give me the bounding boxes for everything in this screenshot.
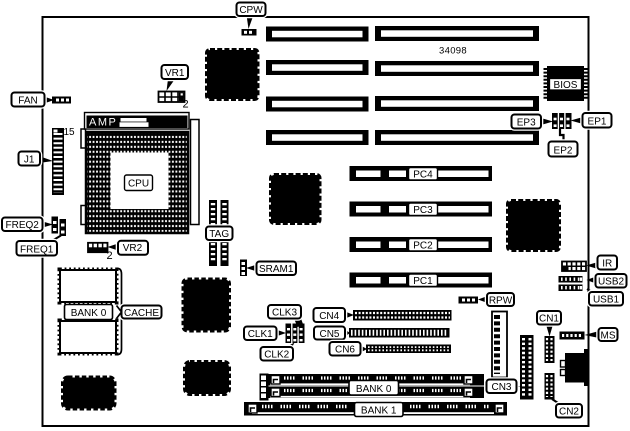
svg-text:AMP: AMP xyxy=(89,117,117,129)
svg-text:CN6: CN6 xyxy=(335,345,355,356)
svg-text:USB1: USB1 xyxy=(593,295,620,306)
svg-text:EP1: EP1 xyxy=(588,117,607,128)
svg-text:IR: IR xyxy=(602,259,612,270)
svg-text:RPW: RPW xyxy=(489,296,513,307)
svg-text:CN2: CN2 xyxy=(559,407,579,418)
svg-text:2: 2 xyxy=(183,99,189,111)
svg-text:MS: MS xyxy=(601,331,616,342)
svg-text:EP3: EP3 xyxy=(517,118,536,129)
svg-text:USB2: USB2 xyxy=(598,277,625,288)
svg-text:2: 2 xyxy=(107,250,113,262)
svg-text:FAN: FAN xyxy=(18,96,37,107)
svg-text:EP2: EP2 xyxy=(554,146,573,157)
svg-text:PC4: PC4 xyxy=(413,170,433,181)
svg-text:CPW: CPW xyxy=(239,5,263,16)
svg-text:PC1: PC1 xyxy=(413,276,433,287)
svg-text:CN5: CN5 xyxy=(319,329,339,340)
svg-text:CLK2: CLK2 xyxy=(264,350,289,361)
svg-text:SRAM1: SRAM1 xyxy=(259,264,294,275)
svg-text:CN3: CN3 xyxy=(491,382,511,393)
svg-text:34098: 34098 xyxy=(439,46,467,57)
svg-text:15: 15 xyxy=(64,127,76,138)
svg-text:BANK 1: BANK 1 xyxy=(361,406,397,417)
svg-text:TAG: TAG xyxy=(209,229,229,240)
svg-text:VR1: VR1 xyxy=(165,68,185,79)
svg-text:BANK 0: BANK 0 xyxy=(356,384,392,395)
svg-text:PC2: PC2 xyxy=(413,241,433,252)
svg-text:CN4: CN4 xyxy=(319,311,339,322)
svg-text:PC3: PC3 xyxy=(413,205,433,216)
svg-text:CLK3: CLK3 xyxy=(272,308,297,319)
svg-text:J1: J1 xyxy=(24,155,35,166)
svg-text:BIOS: BIOS xyxy=(554,80,578,91)
svg-text:FREQ2: FREQ2 xyxy=(6,220,40,231)
svg-text:CLK1: CLK1 xyxy=(248,329,273,340)
svg-text:CN1: CN1 xyxy=(539,314,559,325)
svg-text:CPU: CPU xyxy=(128,179,149,190)
svg-text:BANK 0: BANK 0 xyxy=(71,308,107,319)
svg-text:VR2: VR2 xyxy=(123,243,143,254)
svg-text:FREQ1: FREQ1 xyxy=(20,245,54,256)
svg-text:CACHE: CACHE xyxy=(124,308,159,319)
